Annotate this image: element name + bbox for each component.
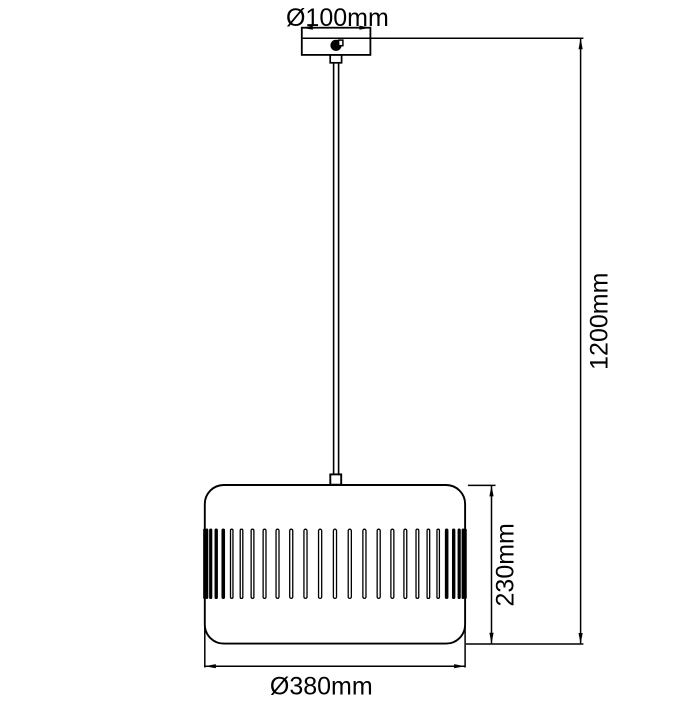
svg-text:Ø100mm: Ø100mm <box>286 4 389 32</box>
svg-text:230mm: 230mm <box>492 523 520 606</box>
svg-text:Ø380mm: Ø380mm <box>270 672 373 700</box>
svg-text:1200mm: 1200mm <box>585 273 613 370</box>
